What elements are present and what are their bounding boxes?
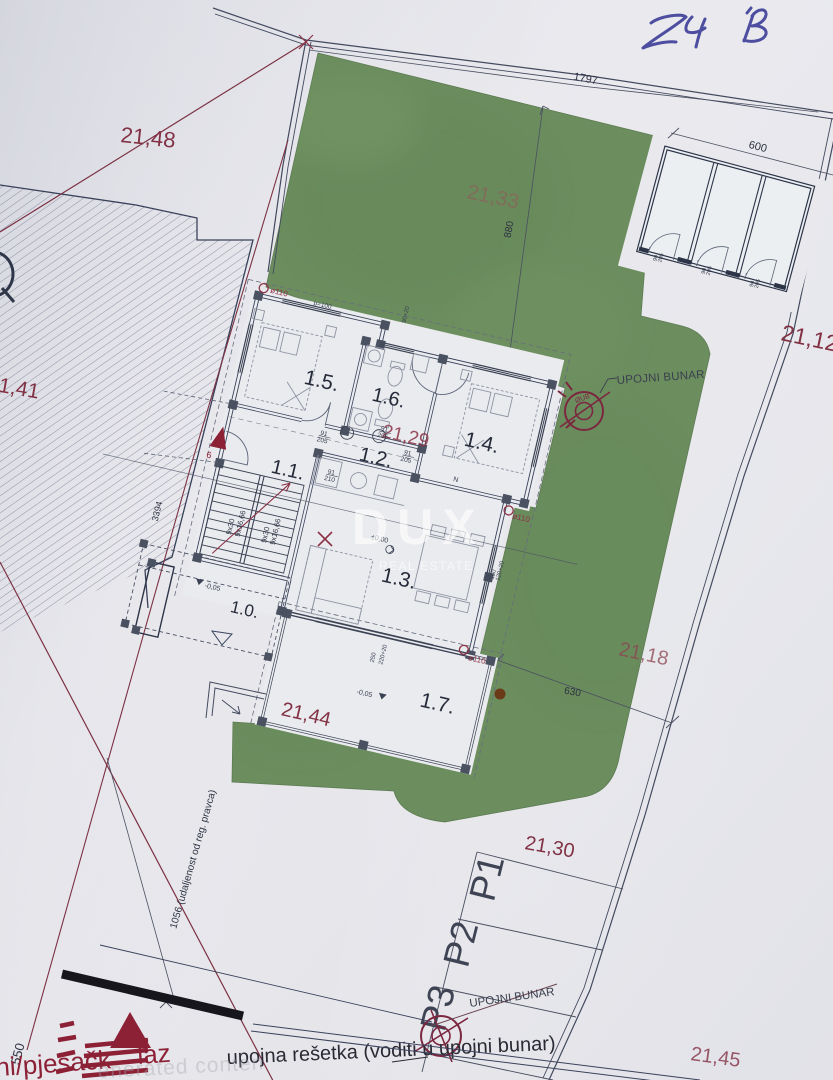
svg-text:DUX: DUX (352, 499, 485, 555)
svg-text:REAL ESTATE: REAL ESTATE (379, 559, 474, 573)
